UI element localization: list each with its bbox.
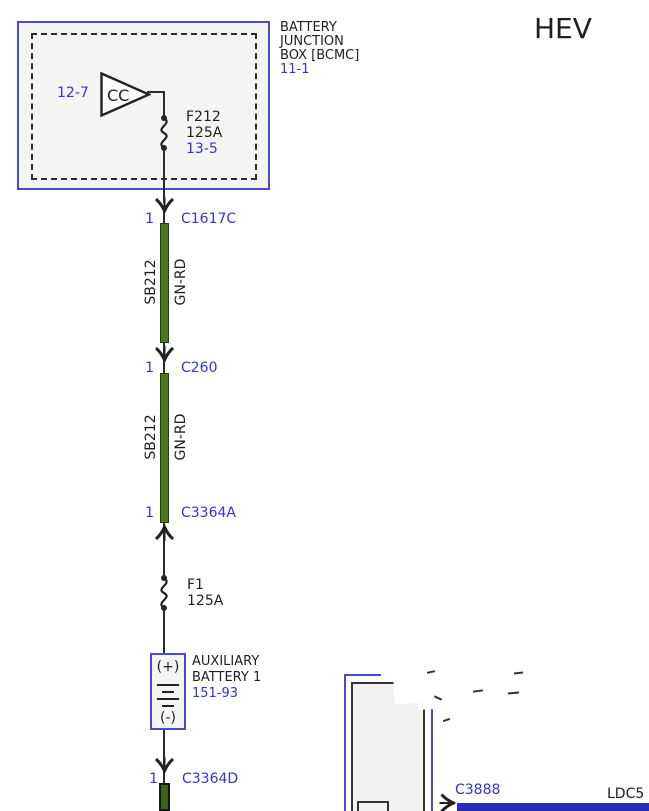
- aux-battery-box: (+) (-): [150, 653, 186, 730]
- battery-cell-line: [157, 698, 179, 700]
- aux-battery-title-line2: BATTERY 1: [192, 671, 261, 685]
- circuit-breaker-page-ref[interactable]: 12-7: [57, 86, 89, 101]
- aux-battery-title-line1: AUXILIARY: [192, 655, 259, 669]
- wire-segment: [163, 148, 165, 203]
- circuit-breaker-label: CC: [107, 86, 129, 105]
- aux-battery-negative-terminal: (-): [160, 710, 176, 726]
- connector-c260-pin: 1: [138, 361, 154, 376]
- fuse-f212-name: F212: [186, 110, 221, 125]
- connector-arrow-up-icon: [154, 525, 175, 541]
- wiring-diagram-page: 12-7 CC BATTERY JUNCTION BOX [BCMC] 11-1…: [0, 0, 649, 811]
- fuse-f212-rating: 125A: [186, 126, 222, 141]
- fuse-f212-page-ref[interactable]: 13-5: [186, 142, 218, 157]
- bottom-module-net-label: LDC5: [607, 787, 644, 802]
- bottom-module-outer-border-top: [344, 674, 381, 676]
- connector-c260-label[interactable]: C260: [181, 361, 218, 376]
- battery-cell-line: [157, 684, 179, 686]
- fuse-f1-icon: [153, 574, 175, 612]
- stray-mark: [443, 718, 450, 722]
- battery-cell-line: [162, 705, 174, 707]
- vehicle-variant-label: HEV: [534, 13, 592, 45]
- wire-segment1-color-label: GN-RD: [173, 259, 189, 306]
- bottom-module-pin-cavity: [357, 801, 389, 811]
- connector-c3364a-label[interactable]: C3364A: [181, 506, 236, 521]
- connector-c3364d-label[interactable]: C3364D: [182, 772, 238, 787]
- battery-junction-box-title-line3: BOX [BCMC]: [280, 49, 359, 63]
- aux-battery-page-ref[interactable]: 151-93: [192, 687, 238, 701]
- wire-segment1-circuit-label: SB212: [143, 259, 159, 304]
- connector-c1617c-pin: 1: [138, 212, 154, 227]
- battery-junction-box-title-line1: BATTERY: [280, 21, 337, 35]
- fuse-f212-icon: [153, 114, 175, 152]
- aux-battery-positive-terminal: (+): [157, 659, 180, 675]
- wire-segment: [163, 608, 165, 655]
- connector-c3888-label[interactable]: C3888: [455, 783, 500, 798]
- bottom-module-outer-border-left: [344, 674, 346, 811]
- connector-c1617c-label[interactable]: C1617C: [181, 212, 236, 227]
- connector-arrow-right-icon: [440, 793, 456, 811]
- wire-sb212-segment2: [160, 373, 169, 523]
- battery-junction-box-title-line2: JUNCTION: [280, 35, 344, 49]
- connector-arrow-down-icon: [154, 346, 175, 362]
- connector-c3364d-pin: 1: [142, 772, 158, 787]
- power-bus-bar: [457, 803, 649, 811]
- battery-junction-box-page-ref[interactable]: 11-1: [280, 63, 310, 77]
- fuse-f1-name: F1: [187, 578, 204, 593]
- wire-segment2-color-label: GN-RD: [173, 414, 189, 461]
- battery-cell-line: [162, 691, 174, 693]
- wire-segment-bottom: [159, 783, 170, 811]
- battery-junction-box: 12-7 CC: [17, 21, 270, 190]
- wire-sb212-segment1: [160, 223, 169, 343]
- wire-segment2-circuit-label: SB212: [143, 414, 159, 459]
- connector-c3364a-pin: 1: [138, 506, 154, 521]
- fuse-f1-rating: 125A: [187, 594, 223, 609]
